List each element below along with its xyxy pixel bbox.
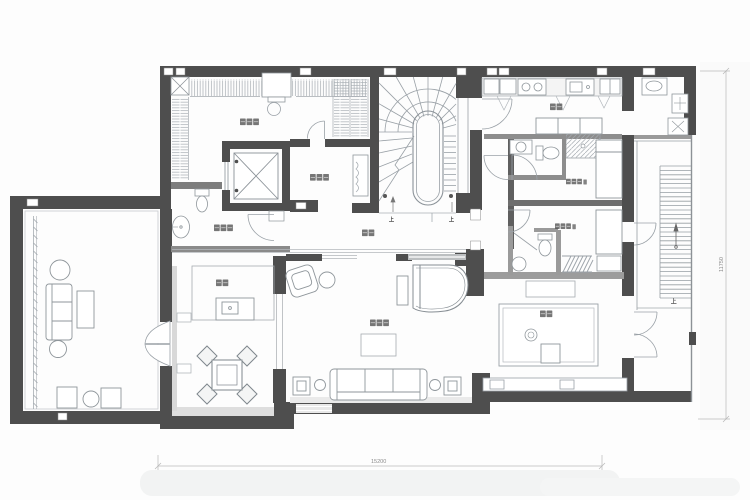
svg-text:15200: 15200 [371, 459, 386, 465]
svg-text:11750: 11750 [719, 257, 725, 272]
